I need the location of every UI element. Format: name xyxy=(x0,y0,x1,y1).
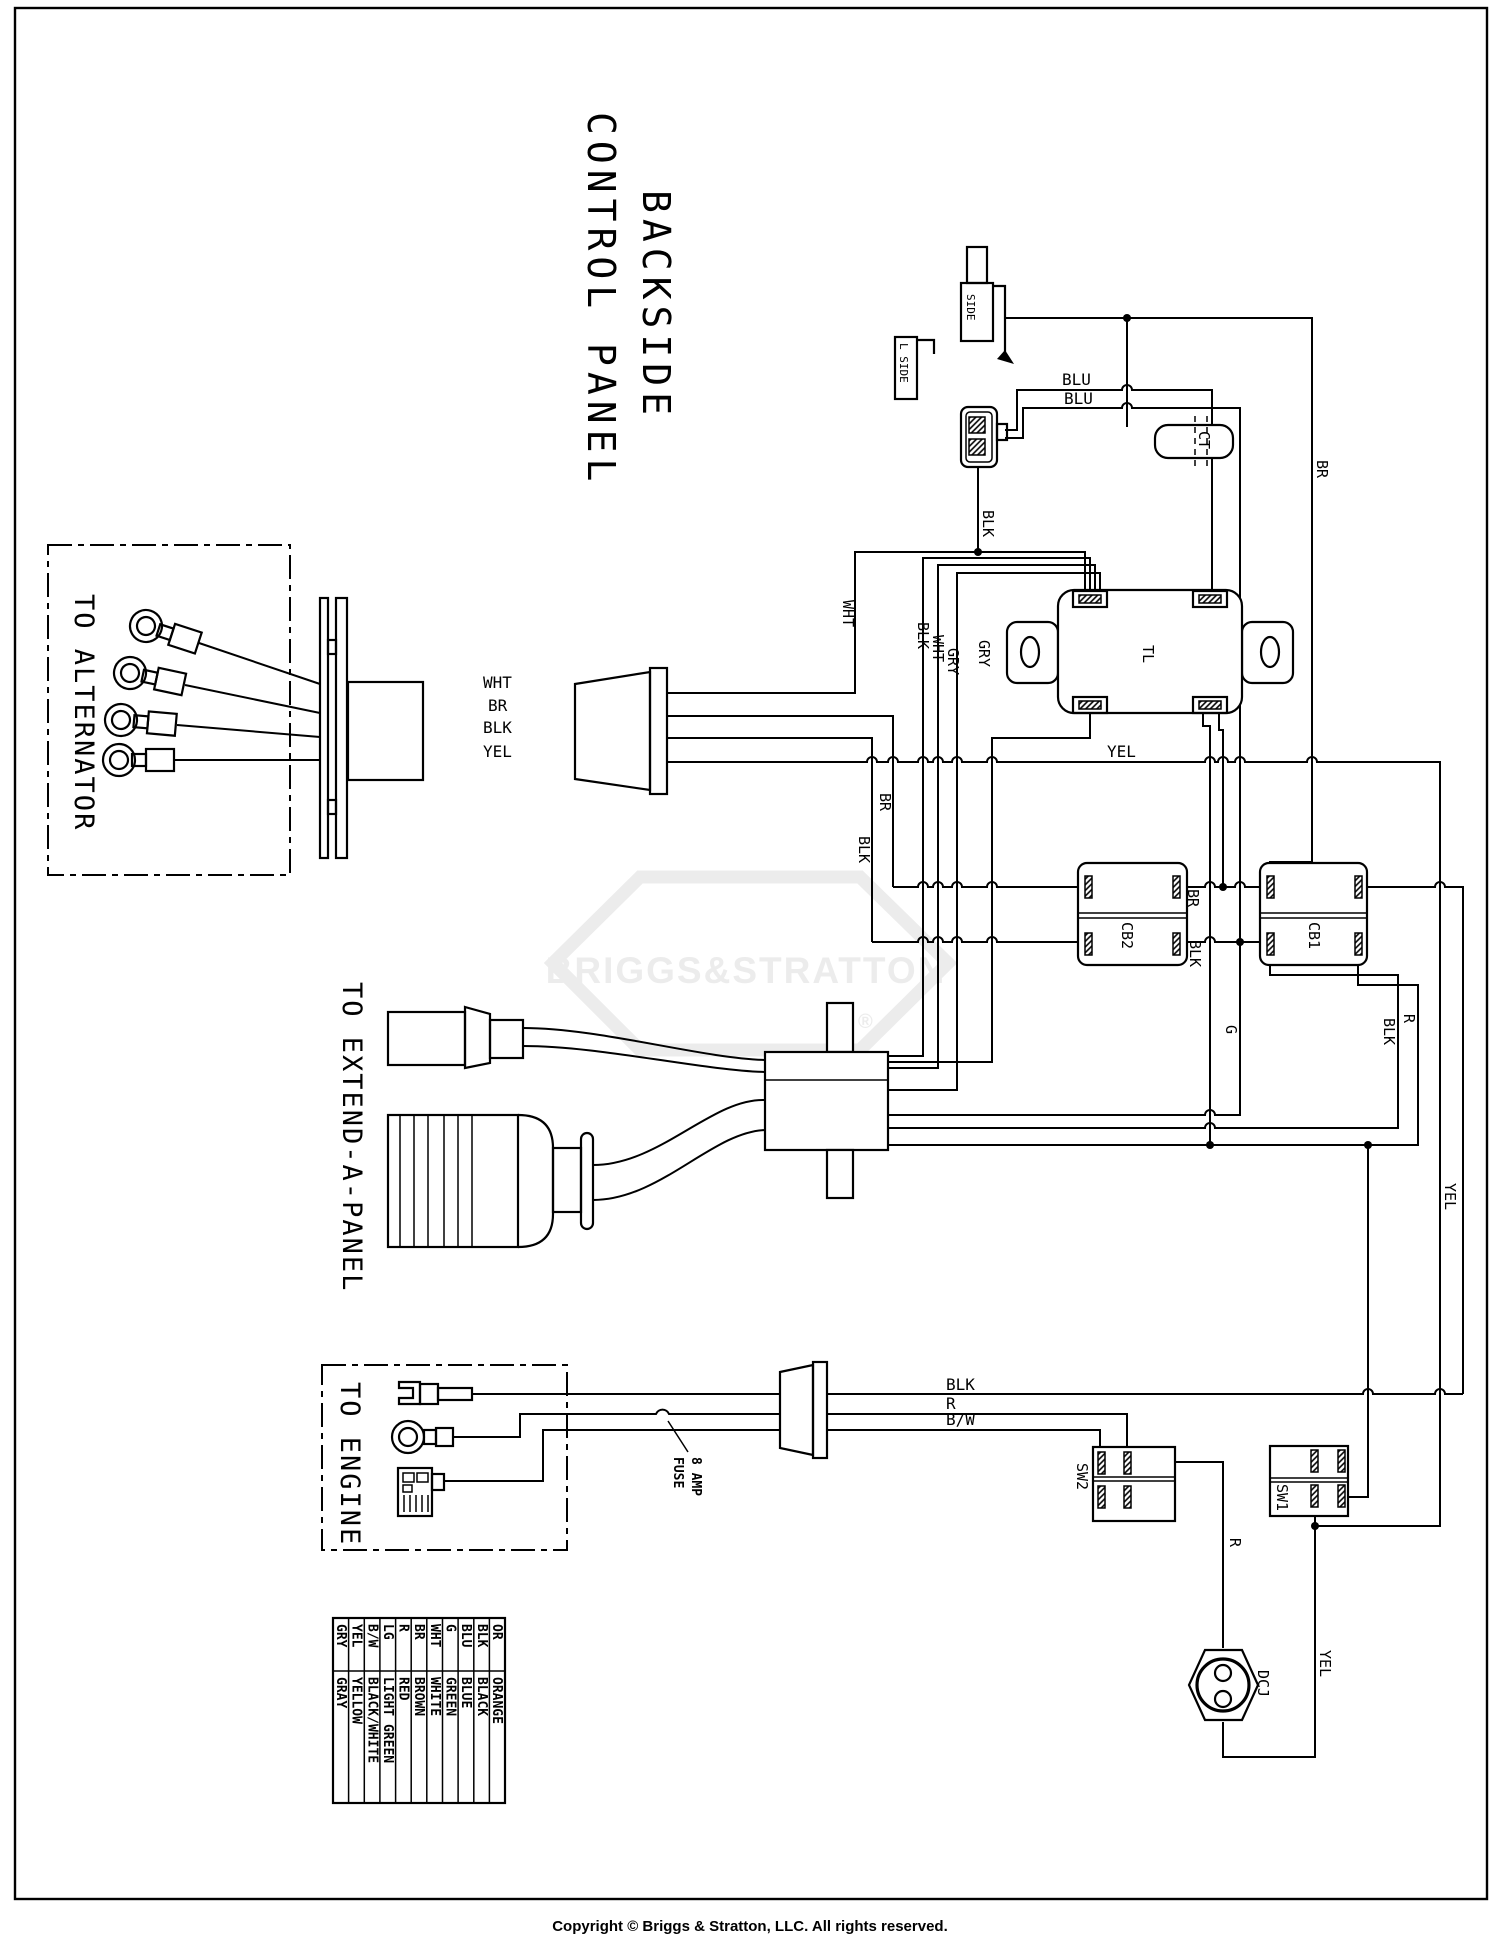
dcj-label: DCJ xyxy=(1254,1670,1272,1697)
to-alternator-section: TO ALTERNATOR xyxy=(48,545,320,875)
wire-label: G xyxy=(1222,1025,1240,1034)
wiring-diagram: BRIGGS&STRATTON ® BACKSIDE CONTROL PANEL… xyxy=(0,0,1500,1941)
fuse-label: 8 AMP FUSE xyxy=(670,1457,703,1496)
wire-label: BLK xyxy=(979,510,997,537)
legend-name: YELLOW xyxy=(349,1677,364,1724)
fuse-label-line1: 8 AMP xyxy=(688,1457,703,1496)
legend-abbr: BLU xyxy=(458,1624,473,1648)
legend-abbr: B/W xyxy=(364,1624,379,1648)
legend-name: RED xyxy=(396,1677,411,1701)
wire-label: R xyxy=(1400,1014,1418,1024)
schematic-page: BRIGGS&STRATTON ® BACKSIDE CONTROL PANEL… xyxy=(0,0,1500,1941)
cb1-breaker: CB1 xyxy=(1260,863,1367,965)
to-alternator-label: TO ALTERNATOR xyxy=(68,594,99,831)
registered-mark-icon: ® xyxy=(858,1011,875,1033)
tl-module: TL xyxy=(1007,590,1293,713)
legend-name: WHITE xyxy=(427,1677,442,1716)
sw1-switch: SW1 xyxy=(1270,1446,1348,1516)
alternator-connector xyxy=(320,598,423,858)
wire-label: BLK xyxy=(483,718,512,737)
legend-abbr: YEL xyxy=(349,1624,364,1648)
copyright-text: Copyright © Briggs & Stratton, LLC. All … xyxy=(552,1918,948,1935)
spade-terminal xyxy=(399,1382,472,1404)
wire-label: GRY xyxy=(944,648,962,675)
ct-label: CT xyxy=(1195,431,1213,449)
legend-abbr: BLK xyxy=(474,1624,489,1648)
legend-name: BLUE xyxy=(458,1677,473,1708)
cb1-label: CB1 xyxy=(1305,922,1323,949)
page-title: BACKSIDE CONTROL PANEL xyxy=(579,112,678,487)
wire-label: BLU xyxy=(1064,389,1093,408)
wire-label: BLK xyxy=(855,836,873,863)
wire-label: BLK xyxy=(1186,940,1204,967)
legend-name: GRAY xyxy=(333,1677,348,1708)
wire-label: R xyxy=(1226,1538,1244,1548)
ring-terminal xyxy=(392,1421,453,1453)
sw2-switch: SW2 xyxy=(1073,1447,1175,1521)
tl-label: TL xyxy=(1139,645,1157,663)
dcj-jack: DCJ xyxy=(1189,1650,1272,1720)
to-engine-label: TO ENGINE xyxy=(334,1382,365,1546)
ring-terminal xyxy=(104,703,178,741)
wire-color-legend: OR ORANGE BLK BLACK BLU BLUE G GREEN WHT… xyxy=(333,1618,505,1803)
harness-connector xyxy=(575,668,667,794)
wire-label: WHT xyxy=(483,673,512,692)
wire-label: WHT xyxy=(839,600,857,627)
to-extend-a-panel-label: TO EXTEND-A-PANEL xyxy=(336,982,367,1292)
cb2-breaker: CB2 xyxy=(1078,863,1187,965)
side-plug-label: SIDE xyxy=(964,294,977,321)
large-plug xyxy=(388,1115,593,1247)
wires xyxy=(444,314,1463,1757)
two-pin-connector xyxy=(961,407,1007,467)
wire-label: YEL xyxy=(483,742,512,761)
wire-label: BR xyxy=(876,793,894,812)
fuse-label-line2: FUSE xyxy=(670,1457,685,1488)
legend-abbr: GRY xyxy=(333,1624,348,1648)
wire-label: B/W xyxy=(946,1410,975,1429)
wire-label: BR xyxy=(1313,460,1331,479)
wire-label: BR xyxy=(1184,889,1202,908)
sw2-label: SW2 xyxy=(1073,1463,1091,1490)
cb2-label: CB2 xyxy=(1118,922,1136,949)
legend-name: BROWN xyxy=(411,1677,426,1716)
legend-abbr: WHT xyxy=(427,1624,442,1648)
wire-label: YEL xyxy=(1316,1650,1334,1677)
wire-label: YEL xyxy=(1441,1183,1459,1210)
arrow-icon xyxy=(997,350,1014,364)
legend-abbr: G xyxy=(443,1624,458,1632)
legend-name: BLACK xyxy=(474,1677,489,1716)
small-plug xyxy=(388,1007,523,1068)
wire-label: BLK xyxy=(946,1375,975,1394)
title-line1: BACKSIDE xyxy=(634,190,678,421)
legend-name: GREEN xyxy=(443,1677,458,1716)
legend-abbr: LG xyxy=(380,1624,395,1640)
wire-label: BLK xyxy=(1380,1018,1398,1045)
briggs-stratton-watermark: BRIGGS&STRATTON ® xyxy=(546,877,948,1050)
wire-label: YEL xyxy=(1107,742,1136,761)
legend-name: LIGHT GREEN xyxy=(380,1677,395,1763)
watermark-text: BRIGGS&STRATTON xyxy=(546,950,947,991)
ring-terminal xyxy=(126,606,203,658)
wire-label: BLU xyxy=(1062,370,1091,389)
ring-terminal xyxy=(111,654,187,700)
l-side-tag: L SIDE xyxy=(895,337,934,399)
wire-label: GRY xyxy=(975,640,993,667)
l-side-label: L SIDE xyxy=(897,343,910,383)
wire-label: BR xyxy=(488,696,508,715)
legend-abbr: BR xyxy=(411,1624,426,1640)
to-engine-section: TO ENGINE xyxy=(322,1365,567,1550)
engine-harness-connector xyxy=(780,1362,827,1458)
ring-terminal xyxy=(103,744,174,776)
side-plug: SIDE xyxy=(961,247,1014,364)
legend-abbr: OR xyxy=(489,1624,504,1640)
legend-name: BLACK/WHITE xyxy=(364,1677,379,1763)
legend-name: ORANGE xyxy=(489,1677,504,1724)
title-line2: CONTROL PANEL xyxy=(579,112,623,487)
sw1-label: SW1 xyxy=(1273,1484,1291,1511)
legend-abbr: R xyxy=(396,1624,411,1632)
ct-transformer: CT xyxy=(1155,416,1233,466)
engine-plug-connector xyxy=(398,1468,444,1516)
